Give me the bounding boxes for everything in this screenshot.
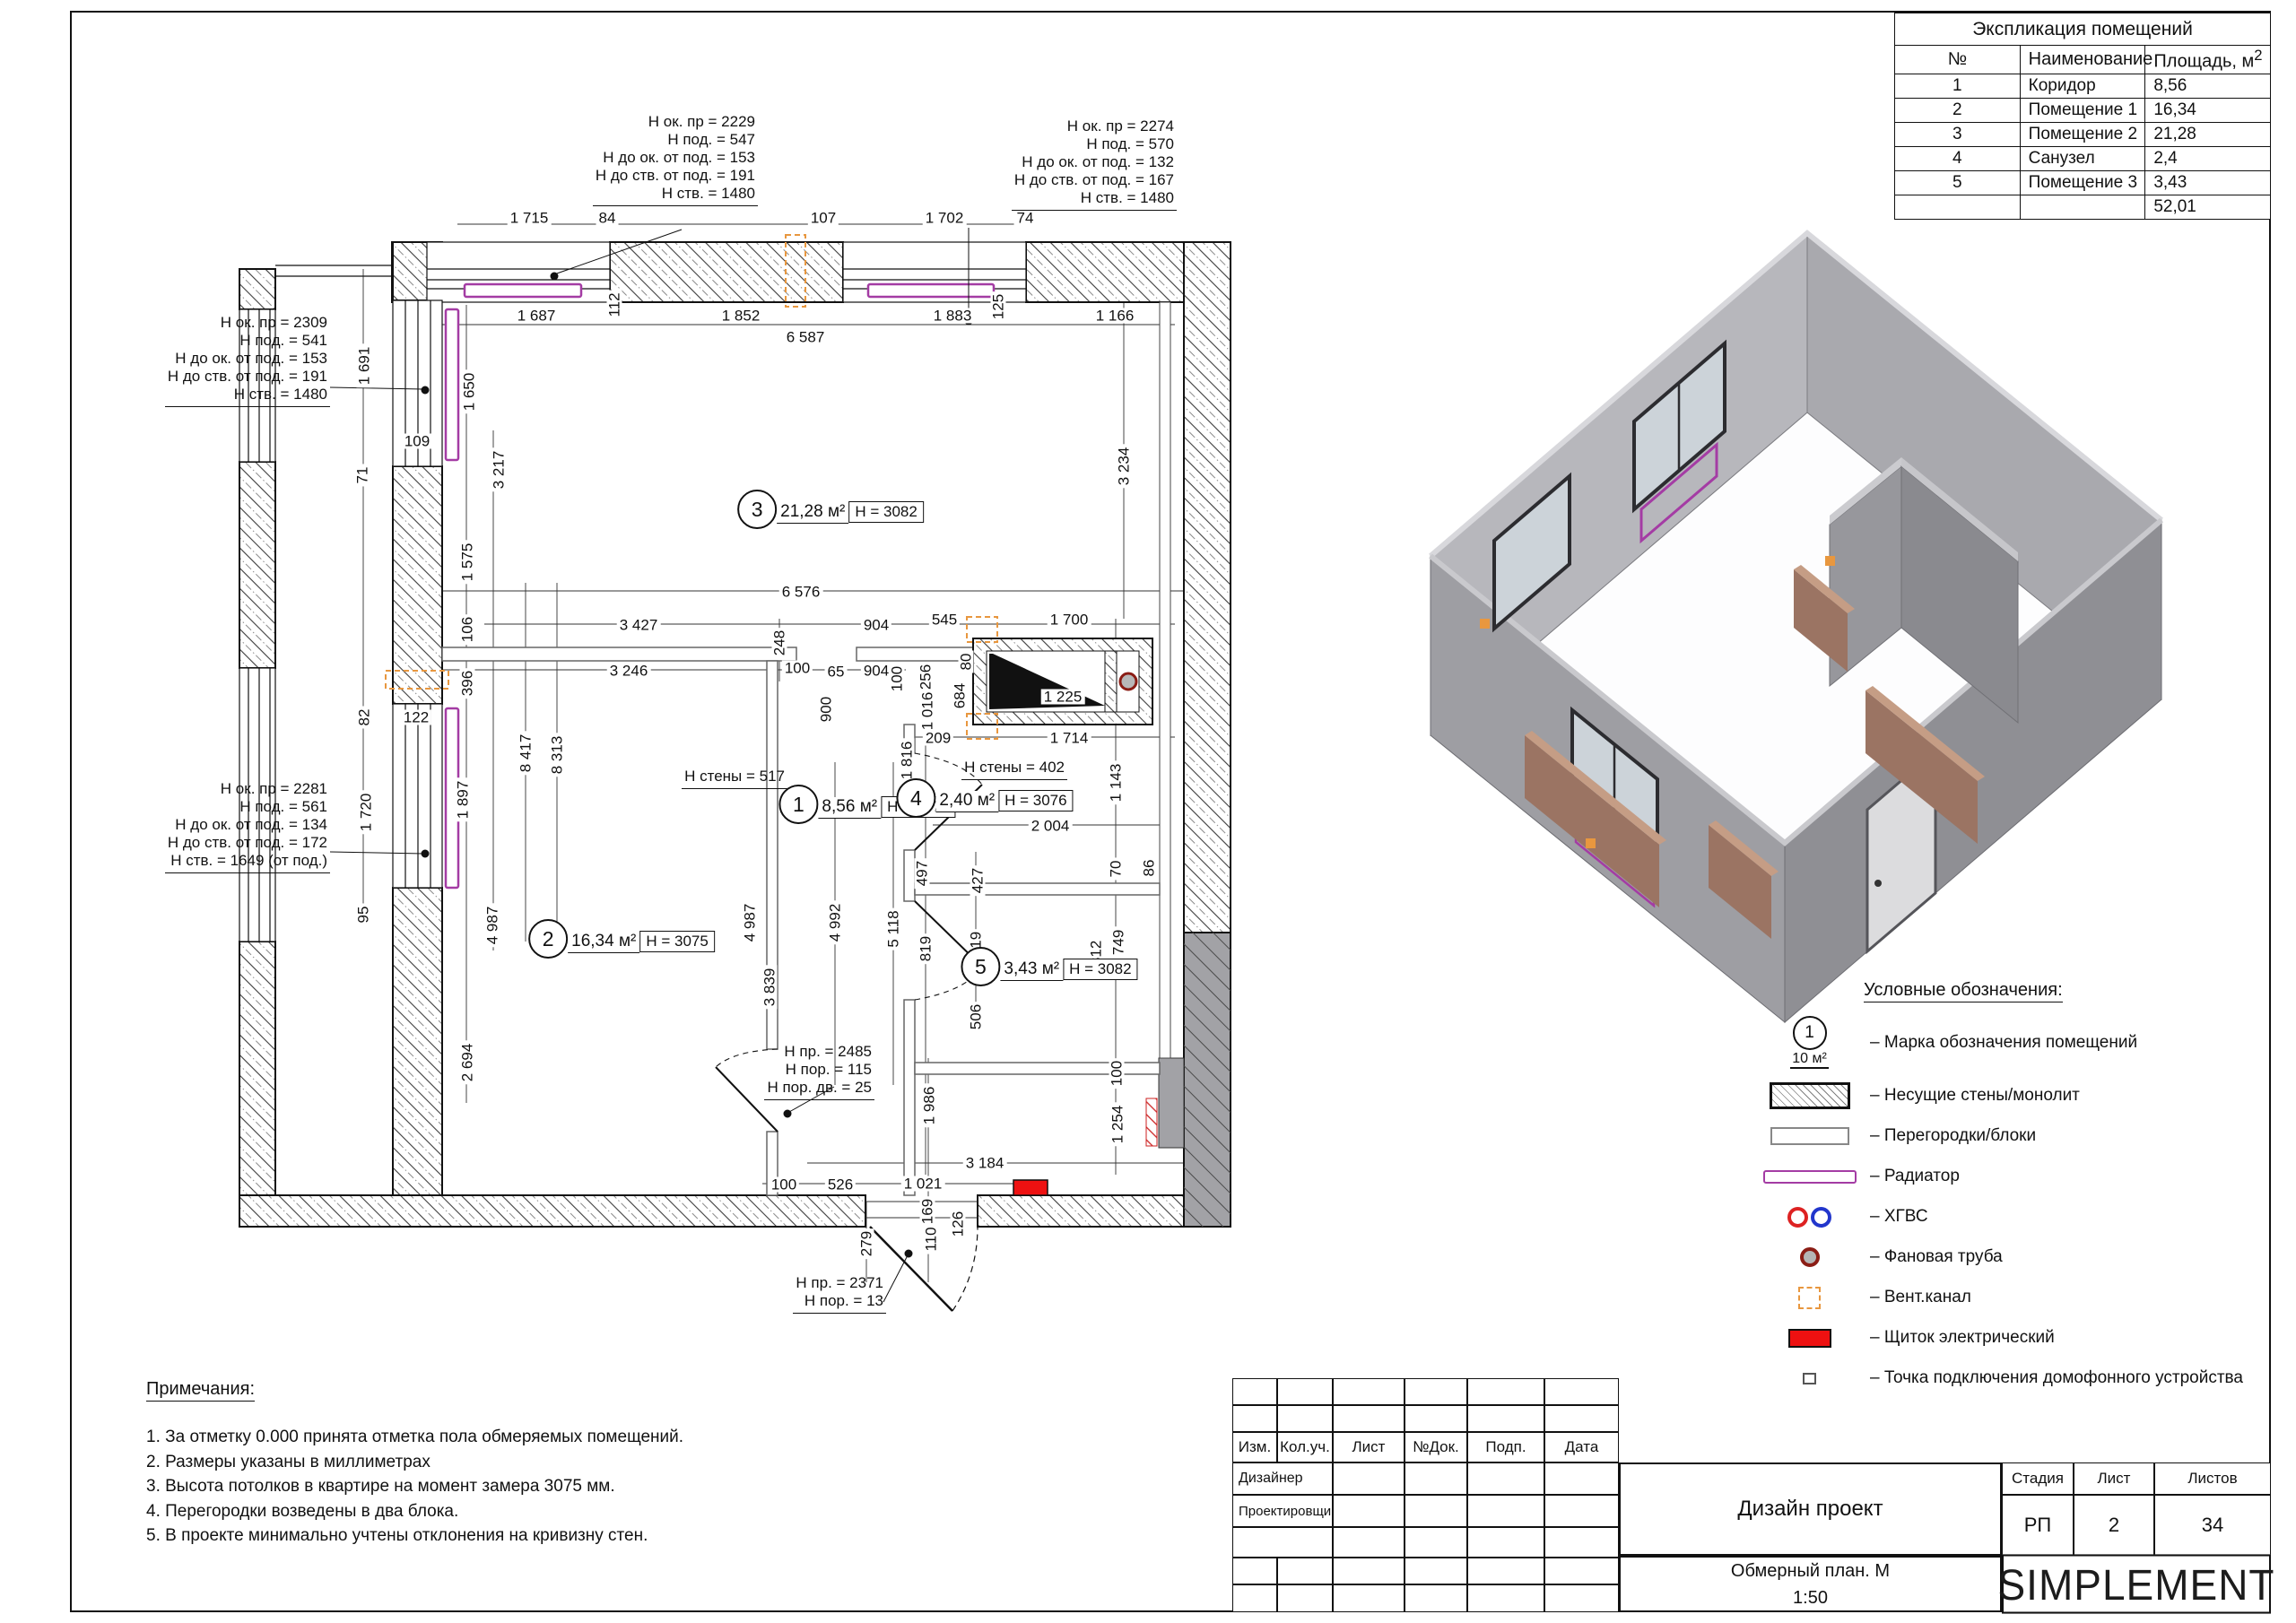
dimension-label: 526 xyxy=(825,1177,856,1193)
dimension-label: 86 xyxy=(1142,857,1157,880)
room-number: 3 xyxy=(737,490,777,529)
dimension-label: 3 184 xyxy=(963,1156,1007,1171)
dimension-label: 497 xyxy=(915,858,930,889)
dimension-label: 1 143 xyxy=(1109,761,1124,805)
dimension-label: 1 254 xyxy=(1110,1103,1126,1147)
legend-label: – Перегородки/блоки xyxy=(1870,1126,2036,1146)
room-height: Н = 3075 xyxy=(639,931,714,952)
dimension-label: 112 xyxy=(607,290,622,319)
project-title: Дизайн проект xyxy=(1619,1462,2002,1556)
dimension-label: 100 xyxy=(769,1177,799,1193)
dimension-label: 248 xyxy=(772,628,787,658)
dimension-label: 4 987 xyxy=(743,901,758,945)
dimension-label: 107 xyxy=(808,211,839,226)
dimension-label: 1 883 xyxy=(931,308,975,324)
dimension-label: 1 897 xyxy=(456,778,471,822)
dimension-label: 80 xyxy=(959,651,974,673)
room-number: 2 xyxy=(528,919,568,959)
room-height: Н = 3082 xyxy=(1063,959,1137,980)
dimension-label: 70 xyxy=(1109,858,1124,881)
dimension-label: 109 xyxy=(402,434,432,449)
col-koluch: Кол.уч. xyxy=(1277,1432,1333,1462)
note-line: 1. За отметку 0.000 принята отметка пола… xyxy=(146,1425,828,1450)
dimension-label: 256 xyxy=(918,662,934,692)
room-area: 21,28 м² xyxy=(777,502,848,524)
doc-scale: 1:50 xyxy=(1793,1584,1828,1611)
room-label: 216,34 м²Н = 3075 xyxy=(528,919,715,959)
dimension-label: 279 xyxy=(859,1228,874,1259)
electric-panel-icon xyxy=(1749,1329,1870,1348)
dimension-label: 545 xyxy=(929,612,960,628)
dimension-label: 3 839 xyxy=(762,966,778,1010)
dimension-label: 8 417 xyxy=(518,732,534,776)
explication-title: Экспликация помещений xyxy=(1895,13,2271,46)
explication-row: 4Санузел2,4 xyxy=(1895,147,2271,171)
height-annotation: Н ок. пр = 2229Н под. = 547Н до ок. от п… xyxy=(593,113,758,206)
dimension-label: 100 xyxy=(890,664,905,694)
bearing-wall-icon xyxy=(1749,1082,1870,1109)
dimension-label: 4 987 xyxy=(485,904,500,948)
dimension-label: 1 166 xyxy=(1093,308,1137,324)
note-line: 2. Размеры указаны в миллиметрах xyxy=(146,1450,828,1475)
sheets-total: 34 xyxy=(2154,1495,2271,1556)
explication-row: 2Помещение 116,34 xyxy=(1895,99,2271,123)
room-area: 8,56 м² xyxy=(818,797,881,819)
col-no: № xyxy=(1895,46,2021,74)
col-podp: Подп. xyxy=(1467,1432,1544,1462)
doc-title: Обмерный план. М 1:50 xyxy=(1619,1556,2002,1612)
legend-item: – Вент.канал xyxy=(1749,1284,2274,1311)
legend-label: – Щиток электрический xyxy=(1870,1328,2055,1348)
role-designer: Дизайнер xyxy=(1232,1462,1333,1495)
dimension-label: 1 852 xyxy=(719,308,763,324)
dimension-label: 1 700 xyxy=(1048,612,1091,628)
dimension-label: 396 xyxy=(460,668,475,699)
dimension-label: 169 xyxy=(920,1196,935,1227)
dimension-label: 209 xyxy=(923,731,953,746)
dimension-label: 3 427 xyxy=(617,618,661,633)
col-izm: Изм. xyxy=(1232,1432,1277,1462)
dimension-label: 3 217 xyxy=(491,448,507,492)
dimension-label: 95 xyxy=(356,904,371,926)
dimension-label: 3 234 xyxy=(1117,445,1132,489)
dimension-label: 1 016 xyxy=(920,690,935,733)
stage-value: РП xyxy=(2002,1495,2074,1556)
dimension-label: 1 225 xyxy=(1041,690,1085,705)
note-line: 5. В проекте минимально учтены отклонени… xyxy=(146,1523,828,1549)
explication-row: 1Коридор8,56 xyxy=(1895,74,2271,99)
dimension-label: 4 992 xyxy=(828,901,843,945)
stage-label: Стадия xyxy=(2002,1462,2074,1495)
total-area: 52,01 xyxy=(2145,195,2271,220)
dimension-label: 8 313 xyxy=(550,733,565,777)
sheet-label: Лист xyxy=(2074,1462,2154,1495)
dimension-label: 1 816 xyxy=(900,739,915,783)
dimension-label: 6 576 xyxy=(779,585,823,600)
dimension-label: 65 xyxy=(825,664,848,680)
dimension-label: 904 xyxy=(861,618,891,633)
dimension-label: 82 xyxy=(357,707,372,729)
dimension-label: 126 xyxy=(951,1209,966,1239)
room-area: 2,40 м² xyxy=(935,791,998,812)
legend-item: – Щиток электрический xyxy=(1749,1324,2274,1351)
dimension-label: 1 715 xyxy=(508,211,552,226)
notes-title: Примечания: xyxy=(146,1379,255,1402)
height-annotation: Н ок. пр = 2309Н под. = 541Н до ок. от п… xyxy=(165,314,330,407)
dimension-label: 5 118 xyxy=(886,907,901,950)
dimension-label: 1 714 xyxy=(1048,731,1091,746)
room-height: Н = 3082 xyxy=(848,501,923,523)
room-area: 3,43 м² xyxy=(1000,959,1063,981)
dimension-label: 6 587 xyxy=(784,330,828,345)
drawing-sheet: 1 715841071 702741 6871121 8521 8831251 … xyxy=(0,0,2296,1623)
room-number: 4 xyxy=(896,778,935,818)
dimension-label: 427 xyxy=(970,865,986,896)
room-number: 1 xyxy=(778,785,818,824)
dimension-label: 1 650 xyxy=(462,370,477,414)
col-area: Площадь, м2 xyxy=(2145,46,2271,74)
dimension-label: 1 575 xyxy=(460,541,475,585)
dimension-label: 819 xyxy=(918,933,934,964)
room-number: 5 xyxy=(961,947,1000,986)
legend-title: Условные обозначения: xyxy=(1864,980,2063,1002)
explication-row: 5Помещение 33,43 xyxy=(1895,171,2271,195)
sheets-label: Листов xyxy=(2154,1462,2271,1495)
room-mark-icon: 110 м² xyxy=(1749,1016,1870,1069)
height-annotation: Н стены = 402 xyxy=(961,759,1067,780)
notes: Примечания: 1. За отметку 0.000 принята … xyxy=(146,1379,828,1549)
brand-logo: SIMPLEMENT xyxy=(2002,1554,2271,1613)
room-label: 321,28 м²Н = 3082 xyxy=(737,490,924,529)
room-height: Н = 3076 xyxy=(998,790,1073,811)
legend-item: – Фановая труба xyxy=(1749,1244,2274,1271)
dimension-label: 71 xyxy=(355,464,370,487)
dimension-label: 3 246 xyxy=(607,664,651,679)
height-annotation: Н ок. пр = 2274Н под. = 570Н до ок. от п… xyxy=(1012,117,1177,211)
legend-item: – ХГВС xyxy=(1749,1203,2274,1230)
legend: Условные обозначения: 110 м²– Марка обоз… xyxy=(1749,980,2274,1392)
legend-label: – Несущие стены/монолит xyxy=(1870,1086,2080,1106)
dimension-label: 106 xyxy=(460,614,475,645)
legend-item: – Несущие стены/монолит xyxy=(1749,1082,2274,1109)
dimension-label: 100 xyxy=(1109,1058,1125,1089)
water-icon xyxy=(1749,1207,1870,1228)
explication-row: 3Помещение 221,28 xyxy=(1895,123,2271,147)
dimension-label: 2 004 xyxy=(1029,819,1073,834)
legend-label: – Вент.канал xyxy=(1870,1288,1971,1307)
dimension-label: 904 xyxy=(861,664,891,679)
dimension-label: 1 687 xyxy=(515,308,559,324)
height-annotation: Н пр. = 2371Н пор. = 13 xyxy=(793,1274,886,1314)
dimension-label: 125 xyxy=(991,291,1006,322)
legend-label: – Фановая труба xyxy=(1870,1247,2003,1267)
legend-item: – Перегородки/блоки xyxy=(1749,1123,2274,1150)
partition-icon xyxy=(1749,1127,1870,1145)
dimension-label: 900 xyxy=(819,694,834,725)
title-block: Изм. Кол.уч. Лист №Док. Подп. Дата Дизай… xyxy=(1232,1378,2271,1612)
dimension-label: 84 xyxy=(596,211,619,226)
explication-table: Экспликация помещений № Наименование Пло… xyxy=(1894,13,2271,220)
radiator-icon xyxy=(1749,1170,1870,1184)
legend-label: – ХГВС xyxy=(1870,1207,1928,1227)
dimension-label: 1 720 xyxy=(359,791,374,835)
dimension-label: 1 021 xyxy=(901,1176,945,1192)
room-label: 42,40 м²Н = 3076 xyxy=(896,778,1073,818)
dimension-label: 74 xyxy=(1014,211,1037,226)
sheet-number: 2 xyxy=(2074,1495,2154,1556)
dimension-label: 122 xyxy=(401,710,431,725)
legend-label: – Радиатор xyxy=(1870,1167,1960,1186)
dimension-label: 2 694 xyxy=(460,1041,475,1085)
col-data: Дата xyxy=(1544,1432,1619,1462)
col-name: Наименование xyxy=(2020,46,2145,74)
note-line: 3. Высота потолков в квартире на момент … xyxy=(146,1474,828,1499)
room-area: 16,34 м² xyxy=(568,932,639,953)
legend-item: – Радиатор xyxy=(1749,1163,2274,1190)
room-label: 53,43 м²Н = 3082 xyxy=(961,947,1137,986)
legend-label: – Марка обозначения помещений xyxy=(1870,1033,2137,1053)
height-annotation: Н пр. = 2485Н пор. = 115Н пор. дв. = 25 xyxy=(764,1043,874,1100)
dimension-label: 684 xyxy=(952,681,968,711)
dimension-label: 1 691 xyxy=(357,344,372,388)
dimension-label: 506 xyxy=(969,1002,984,1032)
dimension-label: 1 986 xyxy=(922,1084,937,1128)
height-annotation: Н стены = 517 xyxy=(682,768,787,789)
col-ndok: №Док. xyxy=(1405,1432,1467,1462)
role-draftsman: Проектировщик xyxy=(1232,1495,1333,1527)
legend-item: 110 м²– Марка обозначения помещений xyxy=(1749,1016,2274,1069)
sewer-pipe-icon xyxy=(1749,1247,1870,1267)
dimension-label: 100 xyxy=(782,661,813,676)
col-list: Лист xyxy=(1333,1432,1405,1462)
vent-icon xyxy=(1749,1287,1870,1309)
note-line: 4. Перегородки возведены в два блока. xyxy=(146,1499,828,1524)
height-annotation: Н ок. пр = 2281Н под. = 561Н до ок. от п… xyxy=(165,780,330,873)
dimension-label: 110 xyxy=(924,1224,939,1254)
dimension-label: 1 702 xyxy=(923,211,967,226)
